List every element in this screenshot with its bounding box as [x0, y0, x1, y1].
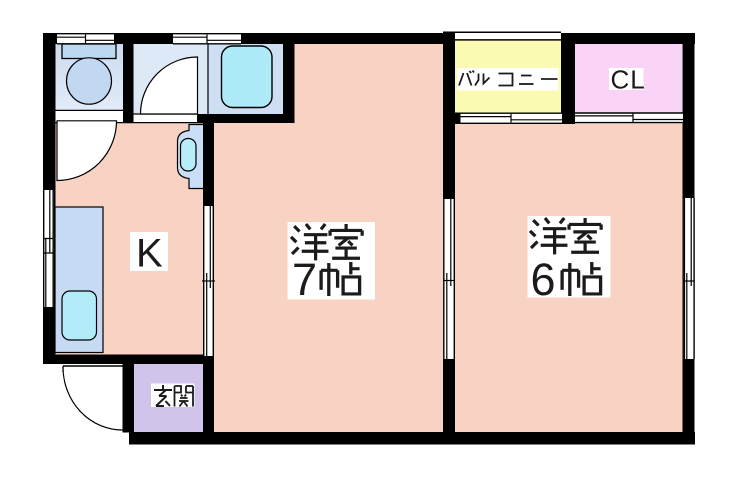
svg-text:CL: CL: [611, 65, 646, 95]
svg-text:6: 6: [531, 254, 556, 305]
svg-text:K: K: [136, 232, 163, 276]
svg-text:7: 7: [292, 254, 317, 305]
